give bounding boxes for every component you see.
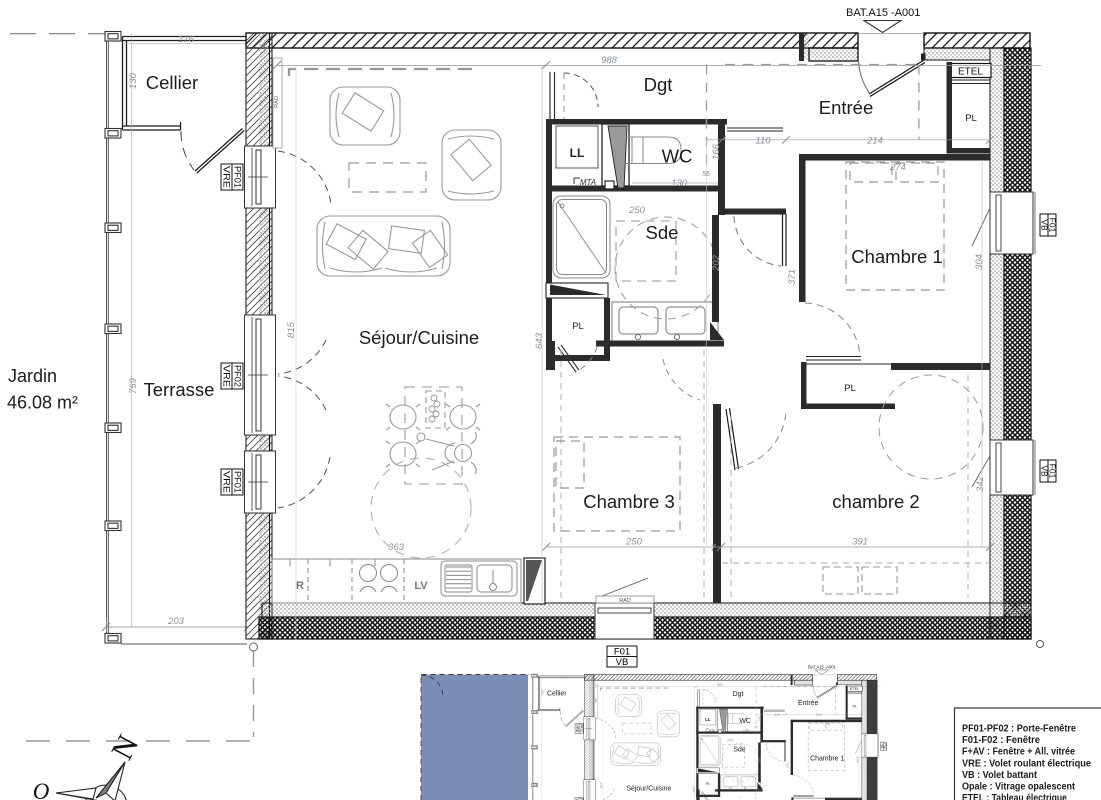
svg-text:RAD: RAD: [619, 598, 631, 604]
svg-text:O: O: [33, 779, 50, 800]
svg-text:VB: VB: [1040, 219, 1050, 231]
svg-text:304: 304: [974, 254, 985, 270]
svg-text:250: 250: [628, 205, 646, 216]
svg-text:203: 203: [167, 616, 185, 627]
svg-text:363: 363: [388, 542, 405, 553]
svg-text:110: 110: [755, 136, 771, 147]
svg-text:Séjour/Cuisine: Séjour/Cuisine: [359, 327, 479, 348]
svg-text:Cellier: Cellier: [146, 72, 198, 93]
svg-text:Sde: Sde: [646, 222, 679, 243]
svg-text:RAD: RAD: [274, 96, 280, 108]
svg-text:LL: LL: [570, 146, 585, 160]
svg-text:PF02: PF02: [233, 365, 243, 387]
svg-text:F01-F02 : Fenêtre: F01-F02 : Fenêtre: [962, 734, 1040, 746]
svg-text:F01: F01: [614, 647, 630, 658]
svg-text:F+AV : Fenêtre + All. vitrée: F+AV : Fenêtre + All. vitrée: [962, 746, 1075, 758]
svg-text:176: 176: [178, 34, 195, 45]
svg-text:55: 55: [702, 171, 710, 178]
svg-text:PL: PL: [844, 383, 856, 394]
svg-text:PL: PL: [572, 321, 584, 332]
svg-text:342: 342: [975, 475, 986, 492]
svg-text:202: 202: [711, 254, 722, 272]
svg-text:PL: PL: [965, 113, 977, 124]
svg-text:250: 250: [625, 537, 643, 548]
svg-text:WC: WC: [662, 146, 693, 167]
svg-text:Opale : Vitrage opalescent: Opale : Vitrage opalescent: [962, 781, 1075, 793]
svg-text:Chambre 3: Chambre 3: [583, 491, 675, 512]
svg-text:VRE: VRE: [222, 471, 232, 493]
svg-text:PF01: PF01: [233, 471, 243, 493]
svg-text:LV: LV: [414, 580, 428, 592]
svg-text:VRE: VRE: [222, 365, 232, 387]
svg-text:VRE: VRE: [222, 166, 232, 188]
svg-text:130: 130: [128, 72, 139, 89]
svg-text:274: 274: [889, 162, 906, 173]
svg-text:166: 166: [711, 143, 722, 160]
svg-text:Terrasse: Terrasse: [144, 379, 215, 400]
svg-text:VB : Volet battant: VB : Volet battant: [962, 769, 1037, 781]
svg-text:46.08 m²: 46.08 m²: [7, 393, 78, 413]
svg-text:643: 643: [534, 332, 545, 349]
svg-text:Jardin: Jardin: [8, 366, 57, 386]
svg-text:ETEL: ETEL: [958, 67, 983, 78]
svg-text:130: 130: [671, 178, 688, 189]
svg-text:815: 815: [286, 321, 297, 338]
svg-text:Chambre 1: Chambre 1: [851, 246, 943, 267]
svg-text:BAT.A15 -A001: BAT.A15 -A001: [846, 7, 920, 19]
svg-text:VB: VB: [616, 657, 629, 668]
svg-text:MTA: MTA: [580, 178, 596, 187]
svg-text:PF01-PF02 : Porte-Fenêtre: PF01-PF02 : Porte-Fenêtre: [962, 723, 1076, 735]
svg-text:7: 7: [710, 543, 716, 554]
svg-text:Entrée: Entrée: [819, 97, 874, 118]
svg-text:Dgt: Dgt: [644, 74, 673, 95]
svg-text:chambre 2: chambre 2: [832, 491, 919, 512]
svg-text:371: 371: [787, 269, 798, 285]
svg-text:R: R: [296, 580, 304, 592]
svg-text:759: 759: [128, 377, 139, 394]
svg-text:391: 391: [852, 537, 868, 548]
svg-text:VB: VB: [1040, 465, 1050, 477]
svg-text:PF01: PF01: [233, 166, 243, 188]
svg-text:214: 214: [866, 136, 883, 147]
svg-text:988: 988: [601, 55, 618, 66]
svg-text:ETEL : Tableau électrique: ETEL : Tableau électrique: [962, 792, 1067, 800]
svg-text:VRE : Volet roulant électrique: VRE : Volet roulant électrique: [962, 757, 1091, 769]
